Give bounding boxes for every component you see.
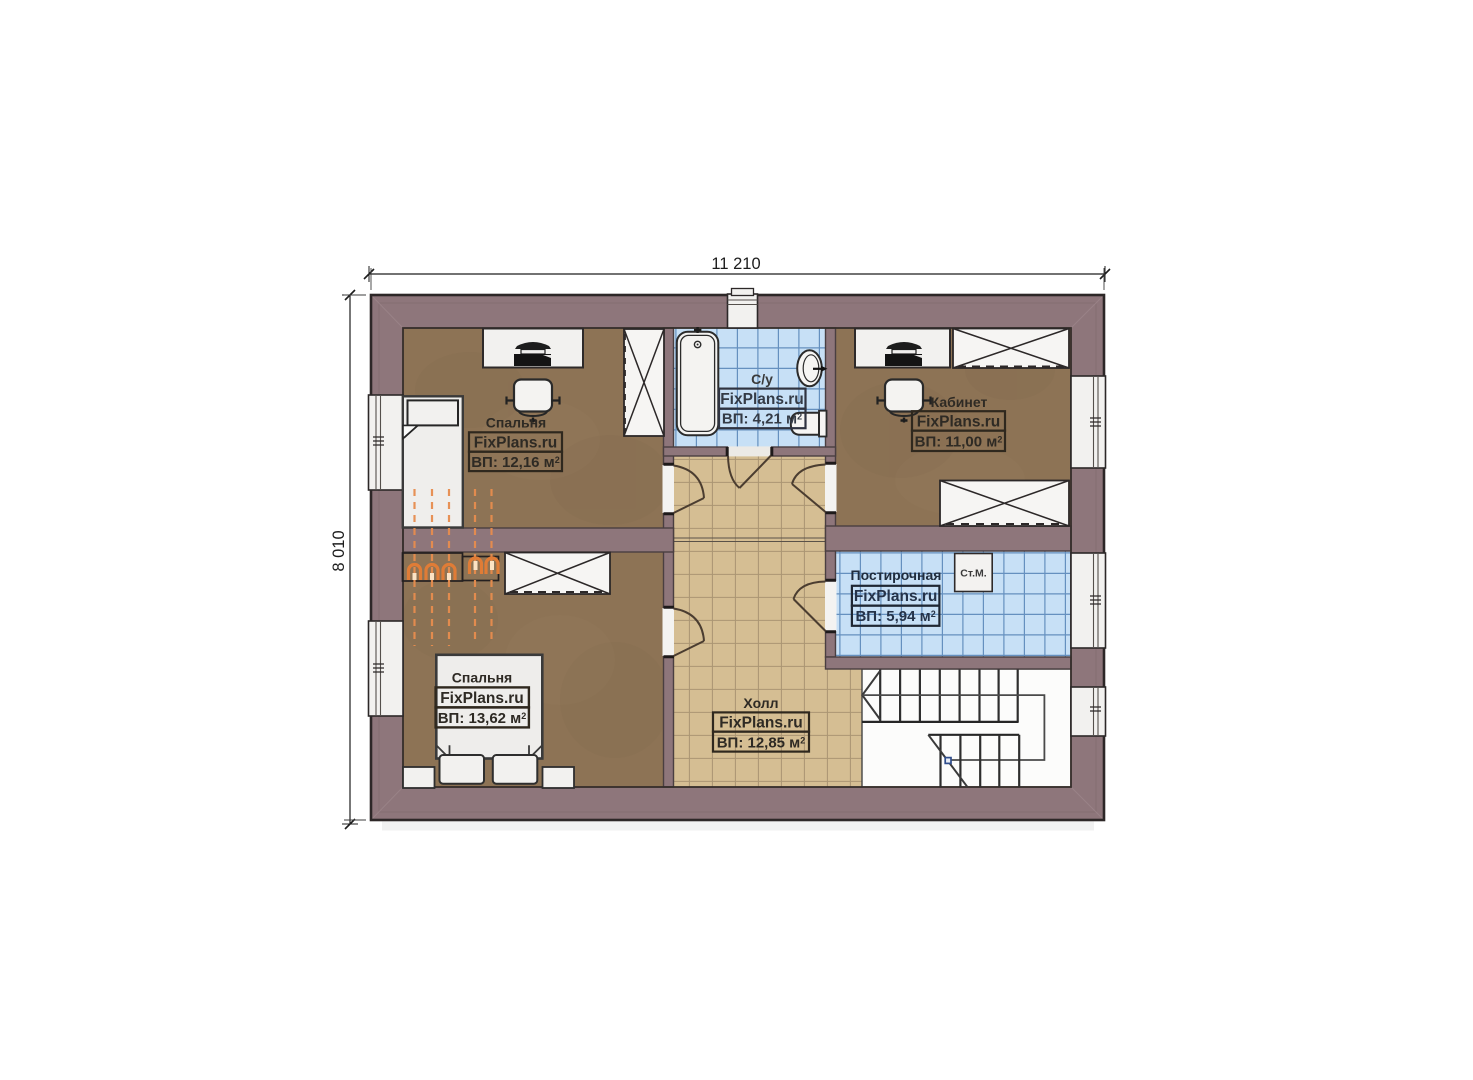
- svg-text:ВП: 5,94 м2: ВП: 5,94 м2: [855, 608, 935, 625]
- svg-text:ВП: 13,62 м2: ВП: 13,62 м2: [438, 710, 527, 727]
- svg-text:ВП: 4,21 м2: ВП: 4,21 м2: [722, 411, 802, 428]
- svg-text:ВП: 12,16 м2: ВП: 12,16 м2: [471, 454, 560, 471]
- svg-text:FixPlans.ru: FixPlans.ru: [917, 413, 1001, 430]
- svg-text:11 210: 11 210: [711, 255, 760, 273]
- svg-text:ВП: 12,85 м2: ВП: 12,85 м2: [717, 734, 806, 751]
- svg-text:FixPlans.ru: FixPlans.ru: [854, 588, 938, 605]
- svg-text:Холл: Холл: [743, 695, 778, 711]
- svg-text:Спальня: Спальня: [486, 415, 546, 431]
- svg-text:Постирочная: Постирочная: [851, 567, 942, 583]
- svg-text:FixPlans.ru: FixPlans.ru: [440, 690, 524, 707]
- svg-text:FixPlans.ru: FixPlans.ru: [719, 715, 803, 732]
- svg-text:Ст.М.: Ст.М.: [960, 568, 986, 580]
- svg-text:FixPlans.ru: FixPlans.ru: [720, 391, 804, 408]
- svg-text:8 010: 8 010: [330, 530, 348, 571]
- svg-text:Кабинет: Кабинет: [931, 394, 988, 410]
- svg-text:С/у: С/у: [751, 371, 773, 387]
- svg-text:Спальня: Спальня: [452, 670, 512, 686]
- svg-text:FixPlans.ru: FixPlans.ru: [474, 435, 558, 452]
- svg-text:ВП: 11,00 м2: ВП: 11,00 м2: [915, 434, 1003, 451]
